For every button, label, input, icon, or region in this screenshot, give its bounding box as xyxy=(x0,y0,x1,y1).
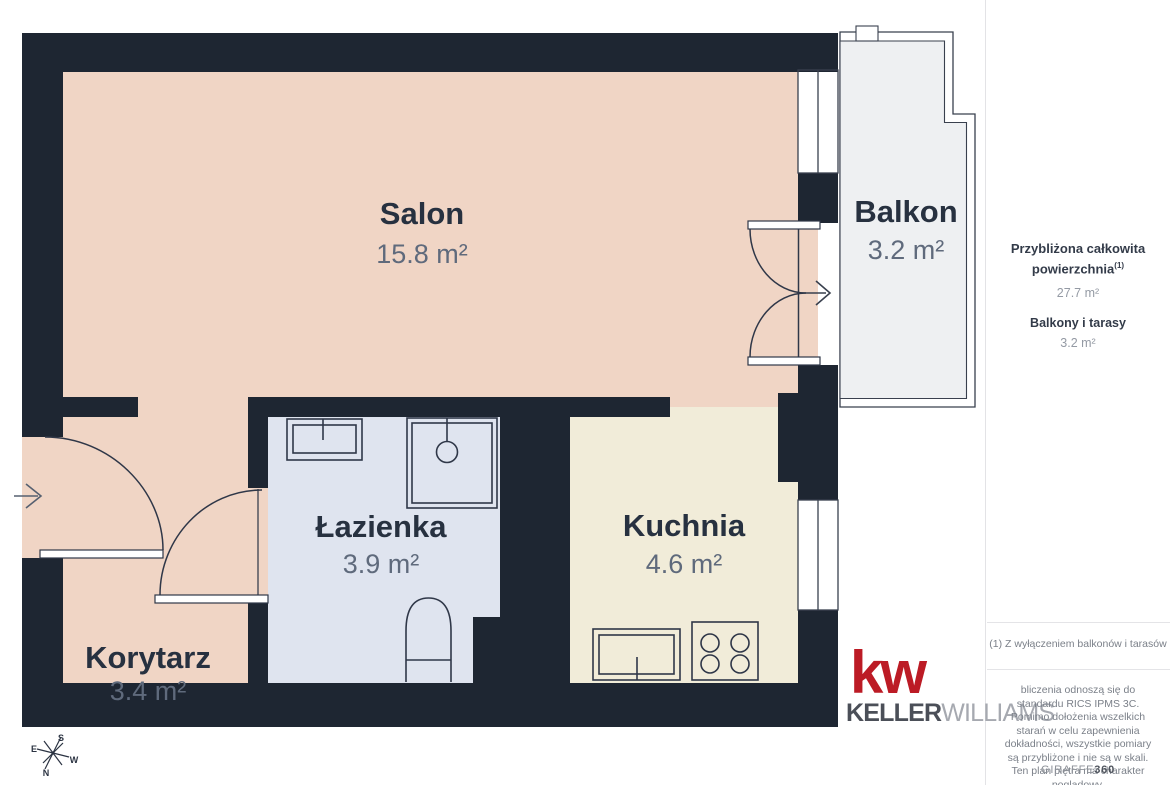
balkon-label: Balkon xyxy=(854,194,957,229)
compass-icon: S E W N xyxy=(31,733,79,778)
wall-corridor-bath-upper xyxy=(248,417,268,488)
balconies-label: Balkony i tarasy xyxy=(986,316,1170,330)
wall-left-upper xyxy=(22,33,63,437)
wall-stub-left xyxy=(63,397,138,417)
giraffe360-brand: GIRAFFE360 xyxy=(986,764,1170,776)
kuchnia-label: Kuchnia xyxy=(623,508,746,543)
wall-right-a xyxy=(798,33,838,70)
salon-corridor-passage xyxy=(138,397,248,417)
total-area-title-text: Przybliżona całkowita powierzchnia xyxy=(1011,241,1145,276)
floorplan-page: Salon 15.8 m² Balkon 3.2 m² Łazienka 3.9… xyxy=(0,0,1170,785)
balcony-railing-gap xyxy=(856,26,878,41)
compass-w: W xyxy=(70,755,79,765)
divider-top xyxy=(987,622,1170,623)
salon-floor xyxy=(63,72,798,397)
wall-right-d xyxy=(798,610,838,727)
kitchen-passage-upper xyxy=(668,397,778,407)
footnote: (1) Z wyłączeniem balkonów i tarasów xyxy=(986,638,1170,650)
area-summary: Przybliżona całkowita powierzchnia(1) 27… xyxy=(986,240,1170,350)
compass-e: E xyxy=(31,744,37,754)
wall-mid-horizontal xyxy=(248,397,670,417)
wall-top xyxy=(22,33,838,72)
salon-label: Salon xyxy=(380,196,464,231)
balkon-area: 3.2 m² xyxy=(868,235,945,265)
entrance-doorway-floor xyxy=(22,437,63,558)
room-floors xyxy=(22,72,818,683)
wall-bath-corner-block xyxy=(473,617,500,683)
salon-window xyxy=(798,70,838,173)
giraffe360-brand-num: 360 xyxy=(1094,764,1115,776)
lazienka-floor-lower xyxy=(268,617,473,683)
balcony-doorway-floor xyxy=(798,223,818,365)
wall-right-c xyxy=(798,365,838,500)
lazienka-area: 3.9 m² xyxy=(343,549,420,579)
total-area-footnote-marker: (1) xyxy=(1114,261,1124,270)
kuchnia-area: 4.6 m² xyxy=(646,549,723,579)
kitchen-window xyxy=(798,500,838,610)
wall-pilaster xyxy=(778,393,798,482)
wall-corridor-bath-lower xyxy=(248,595,268,683)
wall-bath-kitchen xyxy=(500,417,570,683)
salon-area: 15.8 m² xyxy=(376,239,468,269)
kw-wordmark-keller: KELLER xyxy=(846,699,941,727)
giraffe360-brand-name: GIRAFFE xyxy=(1041,764,1094,776)
total-area-title: Przybliżona całkowita powierzchnia(1) xyxy=(1000,240,1156,277)
balconies-value: 3.2 m² xyxy=(986,336,1170,350)
total-area-value: 27.7 m² xyxy=(986,286,1170,300)
compass-s: S xyxy=(58,733,64,743)
lazienka-label: Łazienka xyxy=(316,509,448,544)
korytarz-area: 3.4 m² xyxy=(110,676,187,706)
wall-right-b xyxy=(798,173,838,223)
kitchen-passage-lower xyxy=(668,407,778,417)
compass-n: N xyxy=(43,768,50,778)
korytarz-label: Korytarz xyxy=(85,640,211,675)
